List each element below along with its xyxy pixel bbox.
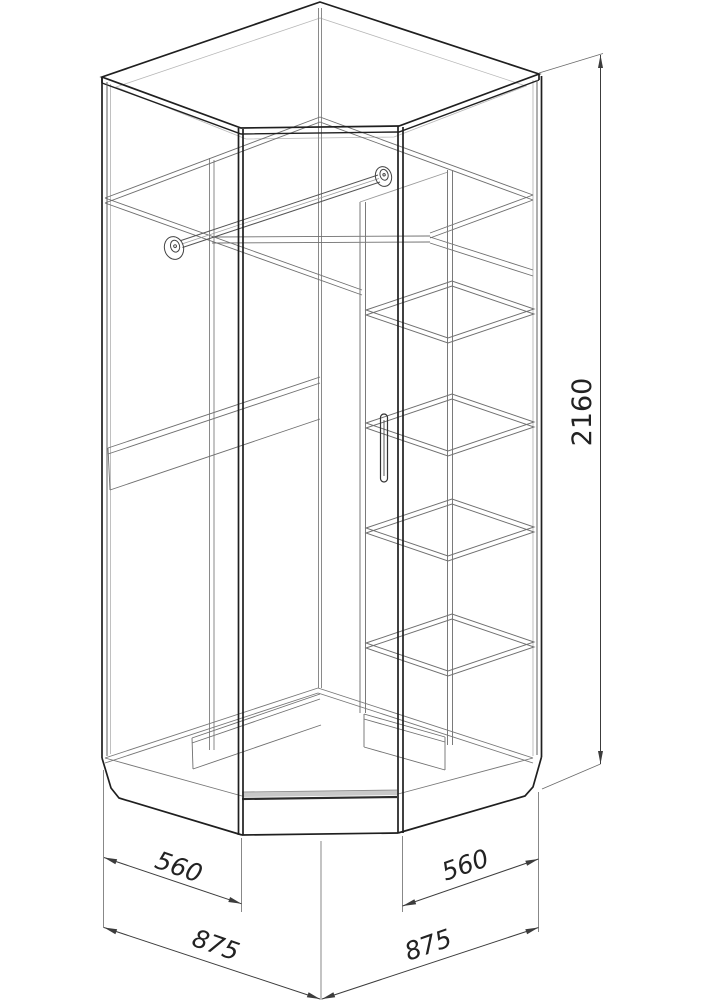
top-panel — [102, 2, 539, 134]
support-bar-right — [364, 714, 445, 770]
floor-panel — [105, 688, 533, 799]
technical-drawing-page: 560 875 560 875 2160 — [0, 0, 707, 1000]
dim-label-2160: 2160 — [567, 378, 598, 447]
shelf-column — [366, 281, 534, 676]
dim-label-560-left: 560 — [151, 845, 206, 888]
rod-flange-right — [373, 165, 394, 188]
shelf-partition — [360, 170, 453, 745]
rod-flange-left — [162, 234, 186, 261]
side-wall-right — [398, 76, 542, 833]
side-wall-left — [102, 77, 242, 835]
dimension-labels: 560 875 560 875 2160 — [151, 378, 598, 967]
front-pillar-left — [239, 128, 244, 835]
shelf-1 — [366, 281, 534, 343]
dim-label-560-right: 560 — [438, 843, 493, 886]
dim-label-875-left: 875 — [188, 923, 243, 966]
support-bar-left — [192, 694, 321, 769]
hanging-rod — [162, 165, 394, 262]
front-pillar-right — [398, 126, 403, 833]
shelf-3 — [366, 499, 534, 561]
dim-label-875-right: 875 — [401, 923, 456, 966]
interior-divider-left-edge — [210, 158, 215, 750]
corner-wardrobe-drawing: 560 875 560 875 2160 — [0, 0, 707, 1000]
shelf-2 — [366, 394, 534, 456]
shelf-4 — [366, 614, 534, 676]
door-handle — [381, 414, 388, 482]
front-bottom-edge — [242, 833, 398, 835]
dimensions: 560 875 560 875 2160 — [104, 54, 604, 1000]
back-corner-edge — [319, 8, 322, 688]
plinth-supports — [192, 694, 445, 770]
